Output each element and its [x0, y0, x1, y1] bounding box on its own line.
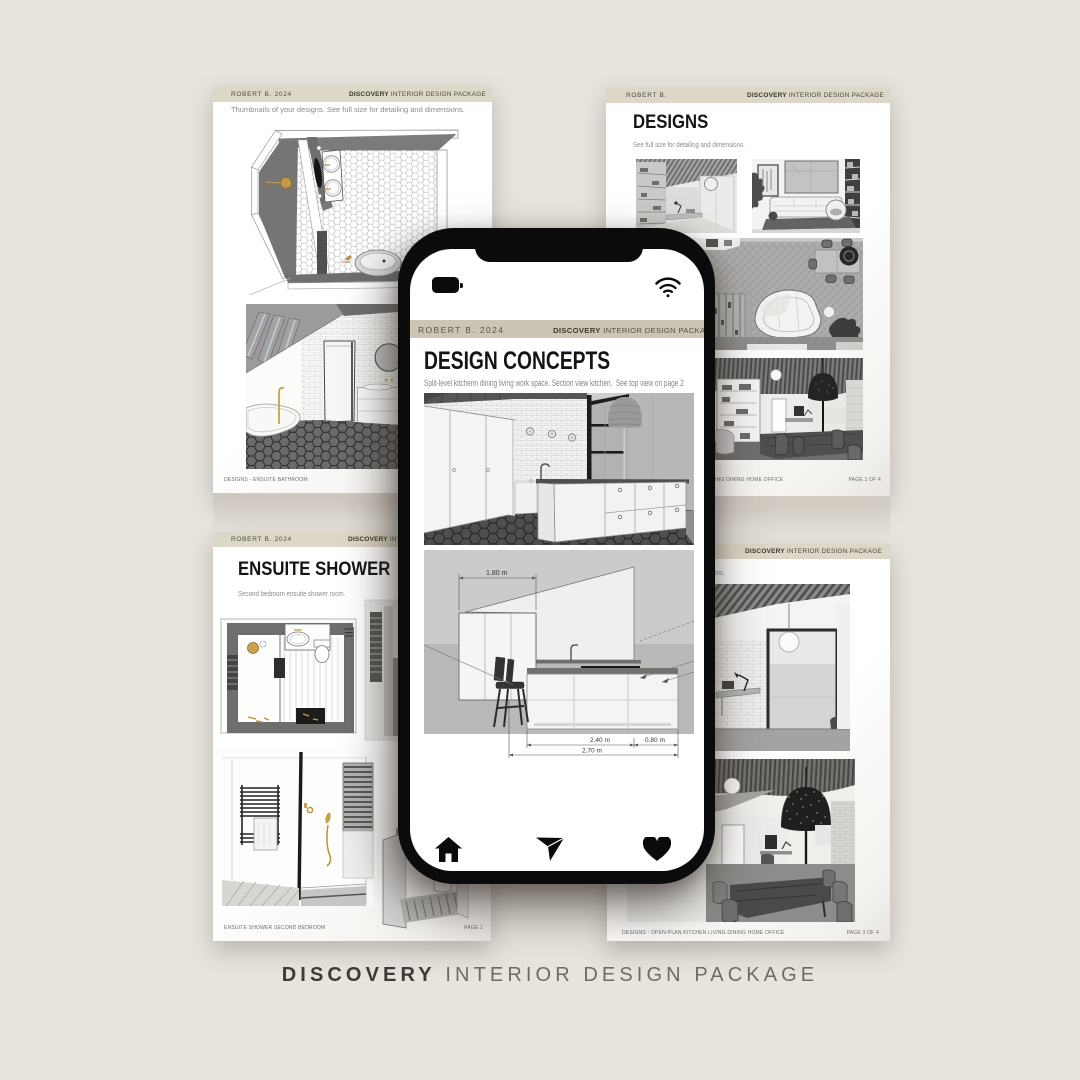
svg-text:2.40 m: 2.40 m [590, 737, 610, 744]
svg-text:2.70 m: 2.70 m [582, 748, 602, 755]
svg-text:0.80 m: 0.80 m [645, 737, 665, 744]
svg-text:1.80 m: 1.80 m [486, 570, 508, 577]
